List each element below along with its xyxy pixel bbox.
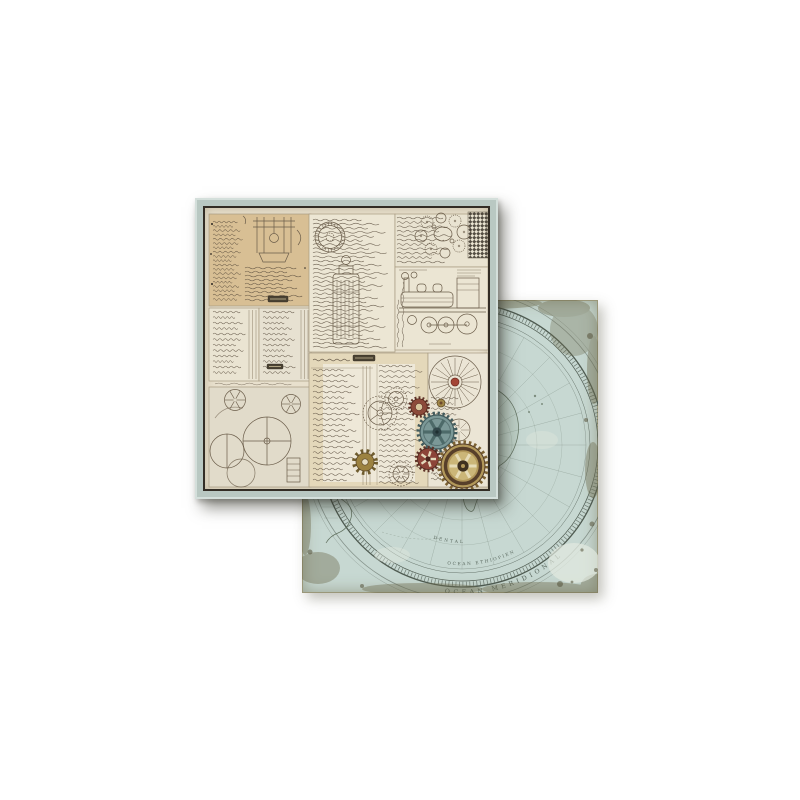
map-label-dental: DENTAL <box>433 536 465 545</box>
panel-script-column <box>309 214 395 352</box>
brass-knob <box>437 399 445 407</box>
collage-frame <box>203 206 490 491</box>
product-photo: OCEAN MERIDIONAL OCEAN ETHIOPIEN DENTAL <box>0 0 800 800</box>
steampunk-collage-illustration <box>205 208 488 489</box>
fan-red-hub <box>451 378 459 386</box>
map-label-ocean-ethiopien: OCEAN ETHIOPIEN <box>447 550 516 568</box>
panel-mechanism-drawings <box>209 387 311 487</box>
panel-ledger-left-page <box>209 308 259 381</box>
svg-text:DENTAL: DENTAL <box>433 536 465 545</box>
scrapbook-paper-front-collage <box>195 198 498 499</box>
caption-line <box>215 383 291 385</box>
lattice-swatch <box>468 212 488 258</box>
svg-text:OCEAN ETHIOPIEN: OCEAN ETHIOPIEN <box>447 550 516 568</box>
